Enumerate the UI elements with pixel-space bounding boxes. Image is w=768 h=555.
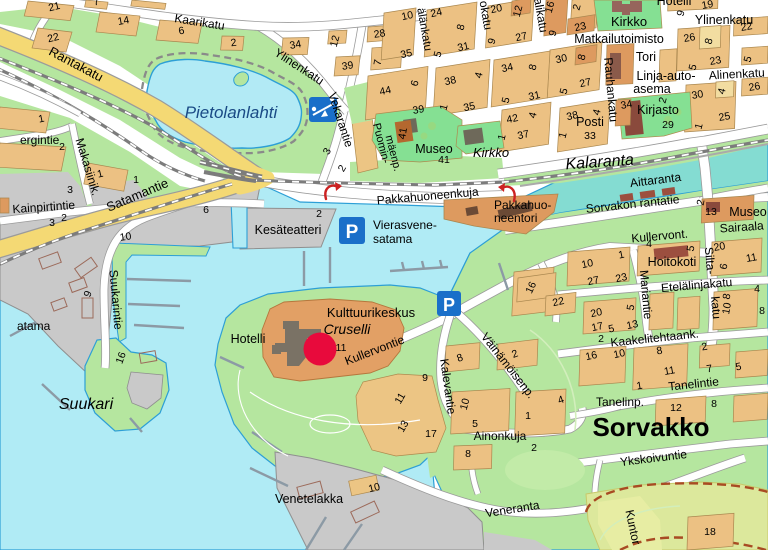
svg-text:2: 2 bbox=[531, 442, 537, 454]
svg-text:8: 8 bbox=[759, 305, 765, 317]
svg-text:41: 41 bbox=[438, 154, 450, 166]
svg-text:Venetelakka: Venetelakka bbox=[275, 492, 343, 506]
svg-text:Linja-auto-: Linja-auto- bbox=[636, 69, 695, 83]
svg-text:4: 4 bbox=[754, 283, 760, 295]
svg-text:Hotelli: Hotelli bbox=[231, 332, 266, 346]
svg-text:atama: atama bbox=[17, 319, 51, 333]
svg-text:Kulttuurikeskus: Kulttuurikeskus bbox=[327, 305, 416, 320]
svg-text:4: 4 bbox=[646, 238, 652, 250]
svg-text:39: 39 bbox=[341, 59, 354, 73]
svg-text:10: 10 bbox=[720, 302, 734, 316]
svg-text:Posti: Posti bbox=[576, 115, 604, 129]
svg-text:26: 26 bbox=[683, 31, 697, 45]
svg-text:41: 41 bbox=[396, 127, 410, 141]
svg-text:Museo: Museo bbox=[729, 205, 767, 219]
svg-text:39: 39 bbox=[412, 103, 426, 117]
svg-text:28: 28 bbox=[373, 27, 386, 41]
svg-text:2: 2 bbox=[59, 141, 65, 153]
svg-text:33: 33 bbox=[584, 130, 596, 142]
svg-text:34: 34 bbox=[289, 38, 303, 52]
svg-text:11: 11 bbox=[663, 364, 676, 378]
svg-text:34: 34 bbox=[620, 98, 634, 112]
svg-text:Pakkahuo-: Pakkahuo- bbox=[494, 198, 551, 212]
svg-text:9: 9 bbox=[422, 372, 428, 384]
svg-text:Kesäteatteri: Kesäteatteri bbox=[255, 223, 322, 237]
svg-text:Cruselli: Cruselli bbox=[324, 321, 372, 337]
svg-text:Ainonkuja: Ainonkuja bbox=[474, 429, 527, 443]
svg-text:2: 2 bbox=[316, 208, 322, 220]
svg-text:23: 23 bbox=[709, 54, 723, 68]
svg-text:Hotelli: Hotelli bbox=[657, 0, 692, 8]
svg-text:30: 30 bbox=[691, 88, 705, 102]
svg-text:Kirjasto: Kirjasto bbox=[637, 103, 679, 117]
svg-text:3: 3 bbox=[67, 184, 73, 196]
svg-text:11: 11 bbox=[745, 251, 758, 265]
svg-text:Vierasvene-: Vierasvene- bbox=[373, 218, 437, 232]
svg-text:Matkailutoimisto: Matkailutoimisto bbox=[574, 32, 664, 46]
svg-text:2: 2 bbox=[61, 212, 67, 224]
svg-text:Tori: Tori bbox=[636, 50, 656, 64]
svg-text:12: 12 bbox=[670, 402, 682, 414]
svg-text:2: 2 bbox=[598, 333, 604, 345]
svg-text:ergintie: ergintie bbox=[20, 133, 60, 147]
svg-text:3: 3 bbox=[49, 217, 55, 229]
svg-text:P: P bbox=[443, 295, 455, 315]
svg-text:satama: satama bbox=[373, 232, 413, 246]
svg-text:22: 22 bbox=[740, 20, 754, 34]
svg-text:14: 14 bbox=[117, 14, 131, 28]
svg-text:Hoitokoti: Hoitokoti bbox=[648, 255, 697, 269]
svg-text:18: 18 bbox=[704, 526, 716, 538]
svg-text:20: 20 bbox=[713, 240, 727, 254]
svg-text:P: P bbox=[346, 222, 359, 243]
svg-text:10: 10 bbox=[119, 230, 132, 244]
svg-text:5: 5 bbox=[472, 418, 478, 430]
svg-text:neentori: neentori bbox=[494, 211, 537, 225]
svg-text:asema: asema bbox=[633, 82, 671, 96]
svg-text:Pietolanlahti: Pietolanlahti bbox=[185, 103, 279, 122]
svg-text:Kirkko: Kirkko bbox=[611, 14, 647, 29]
svg-text:1: 1 bbox=[133, 174, 139, 186]
svg-text:29: 29 bbox=[662, 119, 674, 131]
svg-text:8: 8 bbox=[711, 398, 717, 410]
svg-text:Suukari: Suukari bbox=[59, 396, 114, 413]
svg-text:1: 1 bbox=[525, 410, 531, 422]
svg-text:17: 17 bbox=[425, 428, 437, 440]
svg-text:26: 26 bbox=[748, 80, 762, 94]
svg-text:Sorvakko: Sorvakko bbox=[592, 412, 709, 442]
svg-text:11: 11 bbox=[336, 342, 347, 354]
svg-text:25: 25 bbox=[718, 110, 732, 124]
svg-text:Tanelinp.: Tanelinp. bbox=[596, 395, 644, 409]
svg-text:8: 8 bbox=[465, 448, 471, 460]
svg-text:6: 6 bbox=[203, 204, 209, 216]
svg-text:19: 19 bbox=[701, 0, 715, 12]
svg-text:Kirkko: Kirkko bbox=[473, 145, 509, 160]
svg-text:13: 13 bbox=[705, 206, 717, 218]
